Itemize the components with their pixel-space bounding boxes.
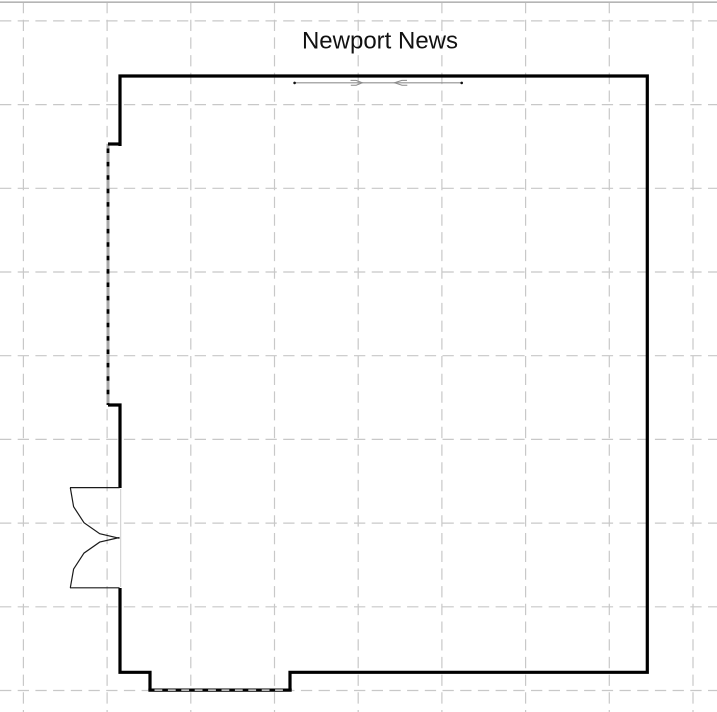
svg-text:Newport News: Newport News bbox=[302, 28, 458, 55]
